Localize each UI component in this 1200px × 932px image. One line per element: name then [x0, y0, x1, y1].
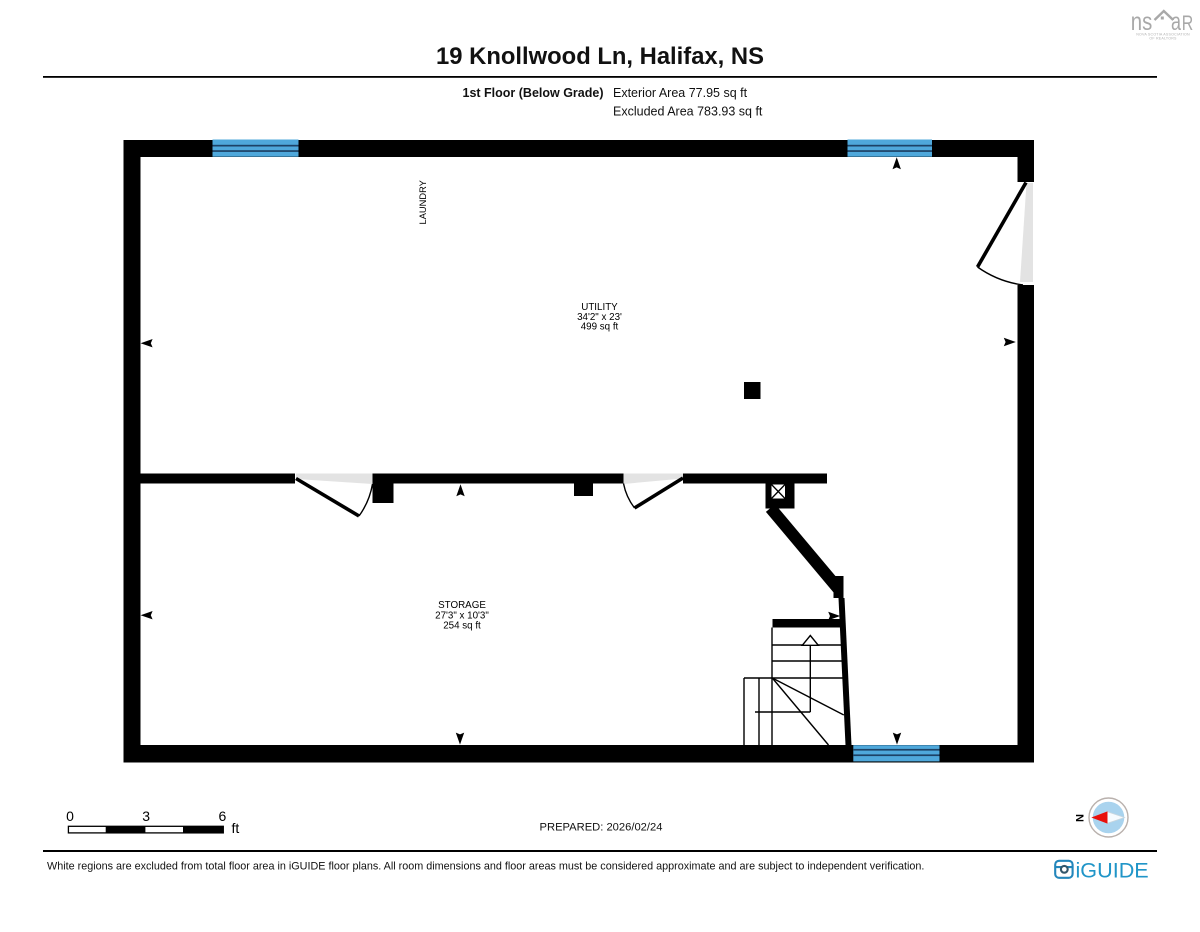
svg-text:3: 3	[142, 808, 150, 824]
svg-text:White regions are excluded fro: White regions are excluded from total fl…	[47, 861, 924, 873]
svg-text:R: R	[1182, 11, 1194, 35]
svg-text:499 sq ft: 499 sq ft	[581, 322, 619, 333]
svg-text:19 Knollwood Ln, Halifax, NS: 19 Knollwood Ln, Halifax, NS	[436, 43, 764, 70]
svg-text:N: N	[1075, 814, 1087, 822]
svg-text:1st Floor (Below Grade): 1st Floor (Below Grade)	[463, 86, 604, 100]
svg-text:iGUIDE: iGUIDE	[1076, 858, 1149, 883]
svg-text:OF REALTORS: OF REALTORS	[1149, 37, 1177, 41]
svg-text:254 sq ft: 254 sq ft	[443, 620, 481, 631]
svg-text:LAUNDRY: LAUNDRY	[418, 180, 428, 224]
svg-text:Exterior Area 77.95 sq ft: Exterior Area 77.95 sq ft	[613, 86, 748, 100]
svg-text:0: 0	[66, 808, 74, 824]
svg-text:6: 6	[219, 808, 227, 824]
svg-text:Excluded Area 783.93 sq ft: Excluded Area 783.93 sq ft	[613, 105, 763, 119]
svg-text:PREPARED: 2026/02/24: PREPARED: 2026/02/24	[540, 822, 663, 834]
svg-text:ft: ft	[232, 820, 240, 836]
